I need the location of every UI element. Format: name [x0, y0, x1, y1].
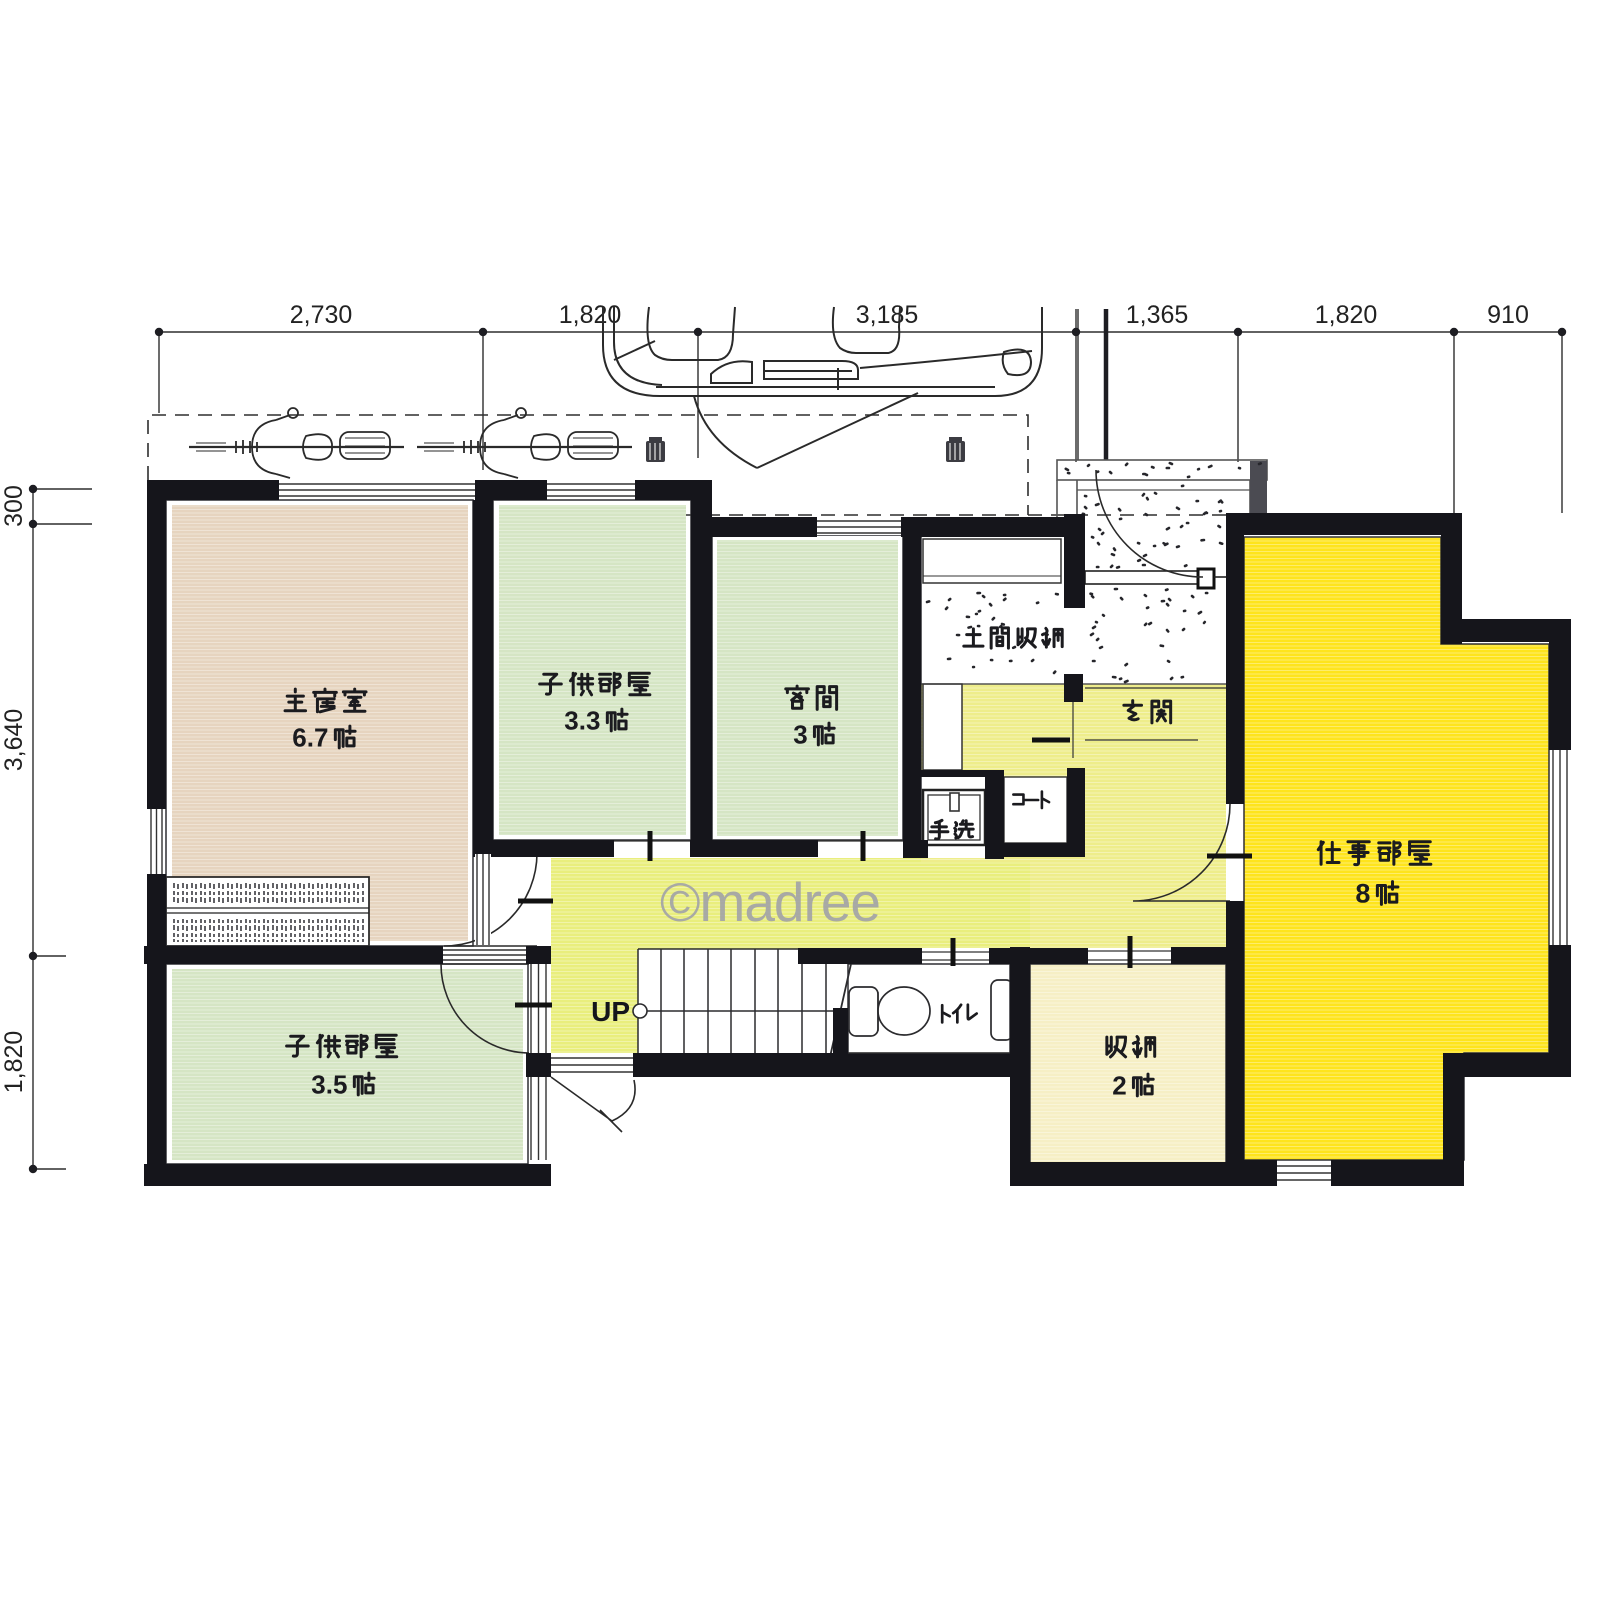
svg-text:3.3: 3.3 — [564, 705, 600, 735]
svg-text:3,185: 3,185 — [856, 301, 919, 329]
svg-text:3: 3 — [793, 719, 807, 749]
svg-text:1,820: 1,820 — [559, 301, 622, 329]
svg-text:910: 910 — [1487, 301, 1529, 329]
svg-text:3,640: 3,640 — [0, 709, 28, 772]
svg-text:UP: UP — [591, 996, 630, 1027]
svg-text:1,820: 1,820 — [1315, 301, 1378, 329]
svg-text:2,730: 2,730 — [290, 301, 353, 329]
svg-text:2: 2 — [1112, 1070, 1126, 1100]
svg-text:©madree: ©madree — [660, 871, 880, 933]
svg-text:8: 8 — [1355, 879, 1370, 909]
svg-text:6.7: 6.7 — [292, 722, 328, 752]
svg-text:1,820: 1,820 — [0, 1031, 28, 1094]
svg-text:1,365: 1,365 — [1126, 301, 1189, 329]
svg-text:300: 300 — [0, 485, 28, 527]
svg-text:3.5: 3.5 — [311, 1069, 347, 1099]
